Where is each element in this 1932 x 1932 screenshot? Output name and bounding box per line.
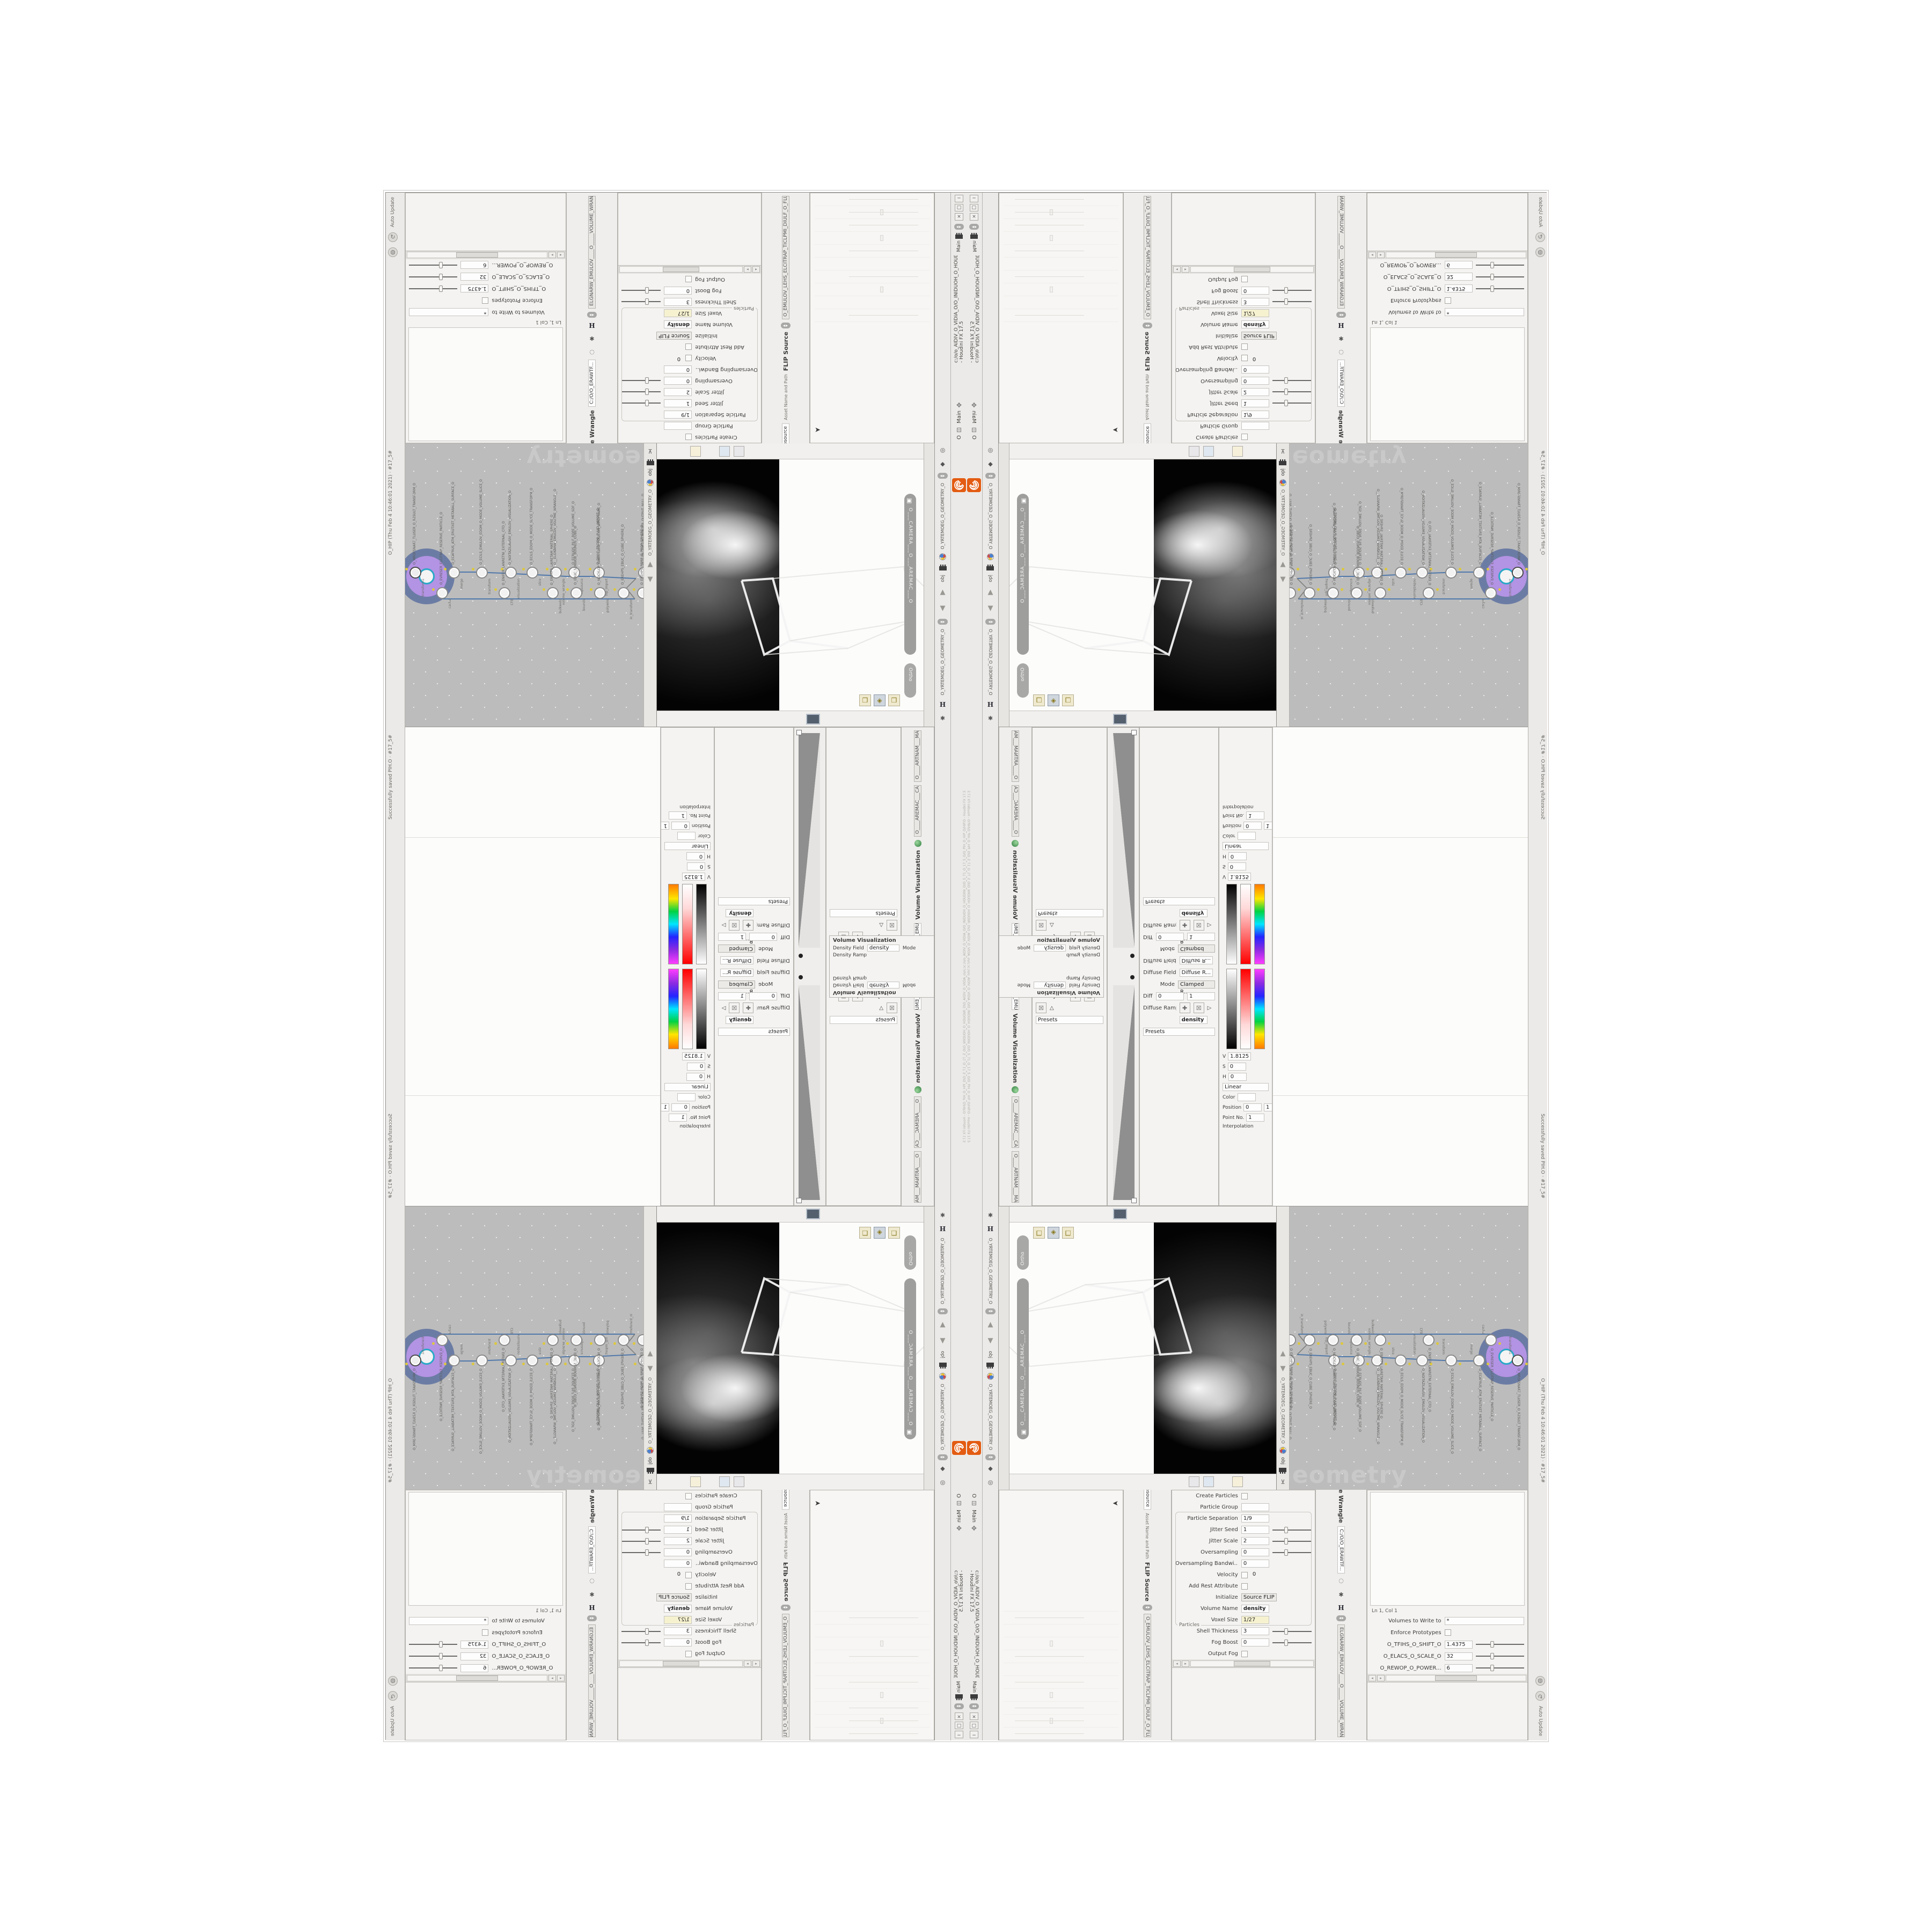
- ortho-pill[interactable]: Ortho: [904, 663, 916, 698]
- param-value-input[interactable]: [654, 275, 682, 283]
- breadcrumb[interactable]: obj: [988, 1351, 993, 1358]
- param-value-input[interactable]: 1/9: [664, 411, 692, 419]
- node-circle[interactable]: [409, 1355, 421, 1366]
- param-value-input[interactable]: 0: [1241, 365, 1269, 374]
- param-value-input[interactable]: 0: [1241, 287, 1269, 295]
- param-slider[interactable]: [409, 1644, 457, 1645]
- param-checkbox[interactable]: [1241, 1651, 1248, 1657]
- enforce-prototypes-checkbox[interactable]: [1445, 1629, 1451, 1636]
- pane-handle-icon[interactable]: ◂▸: [1336, 1615, 1346, 1621]
- network-node[interactable]: O_ENIFER_LANRETNI_EXTERNAL_CFD_O CFB: [1421, 587, 1437, 599]
- toolbar-icon[interactable]: [1261, 1477, 1272, 1488]
- ramp-point-marker[interactable]: [799, 954, 803, 958]
- node-circle[interactable]: [1351, 1334, 1363, 1346]
- network-node[interactable]: O_EBUC_SDNUOB_BOUNDS_CUBE_O bounds: [1349, 1334, 1365, 1346]
- toolbar-icon[interactable]: [1203, 446, 1214, 457]
- param-slider[interactable]: [1272, 380, 1312, 382]
- param-value-input[interactable]: 6: [460, 261, 488, 269]
- toolbar-icon[interactable]: [690, 1209, 701, 1220]
- diffuse-field-input[interactable]: Diffuse R...: [1180, 969, 1213, 977]
- node-circle[interactable]: [1304, 1334, 1315, 1346]
- toolbar-icon[interactable]: [1247, 1477, 1257, 1488]
- ortho-pill[interactable]: Ortho: [1017, 1235, 1029, 1270]
- refresh-icon[interactable]: ↻: [1535, 232, 1545, 242]
- hscript-icon[interactable]: H: [938, 1224, 948, 1233]
- network-node[interactable]: O_ECILS_EMULOV_EDOM_O_MODE_VOLUME_SLICE_…: [1443, 1355, 1459, 1366]
- toolbar-icon[interactable]: [676, 446, 686, 457]
- param-value-input[interactable]: 32: [1445, 273, 1473, 281]
- param-value-input[interactable]: 1: [1241, 1526, 1269, 1534]
- hscript-icon[interactable]: H: [986, 700, 996, 709]
- density-bold-value[interactable]: density: [1180, 910, 1207, 918]
- toolbar-icon[interactable]: [705, 1209, 715, 1220]
- param-value-input[interactable]: [1251, 1492, 1279, 1500]
- node-flag-badge[interactable]: [1388, 588, 1391, 591]
- param-slider[interactable]: [409, 288, 457, 289]
- h-input[interactable]: 0: [686, 852, 705, 860]
- delete-point-icon[interactable]: ☒: [729, 1002, 740, 1013]
- param-slider[interactable]: [1272, 1552, 1312, 1553]
- param-value-input[interactable]: Source FLIP: [1241, 1593, 1277, 1601]
- toolbar-icon[interactable]: [676, 714, 686, 724]
- param-value-input[interactable]: 3: [664, 298, 692, 306]
- pane-handle-icon[interactable]: ◂▸: [1336, 312, 1346, 318]
- display-mode-icon[interactable]: ◈: [874, 694, 885, 706]
- param-value-input[interactable]: Source FLIP: [656, 332, 692, 340]
- gear-icon[interactable]: ✱: [986, 1210, 996, 1219]
- param-value-input[interactable]: 1/9: [664, 1514, 692, 1523]
- ramp-marker-icon[interactable]: ▷: [722, 923, 726, 928]
- node-flag-badge[interactable]: [1342, 568, 1344, 570]
- toolbar-icon[interactable]: [1099, 714, 1109, 724]
- snap-icon[interactable]: ◆: [986, 1465, 996, 1474]
- value-gradient-bar[interactable]: [696, 969, 707, 1049]
- pane-handle-icon[interactable]: ◂▸: [969, 1703, 979, 1709]
- toolbar-icon[interactable]: [1102, 1477, 1113, 1488]
- param-slider[interactable]: [621, 1552, 661, 1553]
- breadcrumb[interactable]: obj: [940, 1351, 946, 1358]
- param-checkbox[interactable]: [1241, 1493, 1248, 1499]
- network-node[interactable]: O_NOCYLOP_EMARFERIW_POLYCON_WIREFRAME_O …: [592, 587, 608, 599]
- param-value-input[interactable]: 0: [664, 1560, 692, 1568]
- param-slider[interactable]: [1476, 265, 1524, 266]
- toolbar-icon[interactable]: [1203, 1209, 1214, 1220]
- scene-viewport[interactable]: ▣ O___CAMERA___O___AREMAC___O Ortho ❒ ◈ …: [1009, 1206, 1276, 1490]
- lighting-icon[interactable]: ❒: [888, 694, 900, 706]
- toolbar-icon[interactable]: [806, 1477, 817, 1488]
- toolbar-icon[interactable]: [824, 1209, 835, 1220]
- density-field-input[interactable]: density: [1034, 982, 1066, 989]
- lighting-icon[interactable]: ❒: [1033, 694, 1045, 706]
- param-slider[interactable]: [1272, 302, 1312, 303]
- add-point-icon[interactable]: ✚: [743, 920, 753, 931]
- param-slider[interactable]: [1272, 1529, 1312, 1531]
- color-swatch[interactable]: [678, 1093, 696, 1101]
- node-flag-badge[interactable]: [613, 1342, 616, 1345]
- nav-down-icon[interactable]: ▼: [937, 1319, 949, 1330]
- param-value-input[interactable]: 1/27: [1241, 309, 1269, 317]
- breadcrumb[interactable]: obj: [1280, 1457, 1286, 1465]
- refresh-icon[interactable]: ↻: [388, 1691, 398, 1701]
- node-circle[interactable]: [1485, 587, 1497, 599]
- node-circle[interactable]: [476, 1355, 488, 1366]
- param-value-input[interactable]: 0: [664, 377, 692, 385]
- interpolation-select[interactable]: Linear: [664, 1083, 711, 1091]
- node-circle[interactable]: [1445, 1355, 1457, 1366]
- param-value-input[interactable]: 0: [654, 1571, 682, 1579]
- ramp-marker-icon[interactable]: △: [1050, 923, 1054, 928]
- density-field-input[interactable]: density: [867, 982, 899, 989]
- node-flag-badge[interactable]: [1298, 588, 1300, 591]
- node-flag-badge[interactable]: [634, 1363, 636, 1365]
- s-input[interactable]: 0: [687, 862, 705, 870]
- enforce-prototypes-checkbox[interactable]: [482, 1629, 488, 1636]
- ramp-end-marker[interactable]: [796, 730, 802, 735]
- toolbar-icon[interactable]: [1174, 446, 1185, 457]
- toolbar-icon[interactable]: [1145, 446, 1156, 457]
- volumes-to-write-input[interactable]: *: [1445, 309, 1524, 317]
- vex-code-editor[interactable]: [408, 327, 563, 441]
- position-hi[interactable]: 1: [661, 822, 669, 830]
- toolbar-icon[interactable]: [719, 446, 730, 457]
- node-circle[interactable]: [594, 587, 606, 599]
- toolbar-icon[interactable]: [690, 1477, 701, 1488]
- diffuse-field-input[interactable]: Diffuse R...: [1180, 957, 1213, 965]
- node-flag-badge[interactable]: [633, 1342, 635, 1345]
- toolbar-icon[interactable]: [1113, 1209, 1127, 1220]
- node-flag-badge[interactable]: [564, 568, 567, 570]
- param-value-input[interactable]: 1: [1241, 399, 1269, 407]
- toolbar-icon[interactable]: [661, 446, 672, 457]
- pane-handle-icon[interactable]: ◂▸: [1143, 1605, 1152, 1611]
- gear-icon[interactable]: ✱: [1336, 334, 1346, 343]
- toolbar-icon[interactable]: [1131, 714, 1141, 724]
- ramp-end-marker[interactable]: [796, 1198, 802, 1203]
- point-no-input[interactable]: 1: [669, 1114, 687, 1122]
- param-slider[interactable]: [621, 1529, 661, 1531]
- value-gradient-bar[interactable]: [1226, 969, 1237, 1049]
- node-circle[interactable]: [526, 567, 538, 579]
- network-node[interactable]: O_MROFSNART_TLUSER_O_RESULT_TRANSFORM_O …: [407, 1355, 423, 1366]
- param-value-input[interactable]: [654, 1650, 682, 1658]
- node-flag-badge[interactable]: [1317, 588, 1320, 591]
- value-gradient-bar[interactable]: [696, 884, 707, 964]
- horizontal-scrollbar[interactable]: ◂▸: [406, 1674, 566, 1682]
- hscript-icon[interactable]: H: [587, 321, 597, 331]
- wrangle-tab[interactable]: ELGNARW_EMULOV____O_____VOLUME_WRANGL...: [588, 1624, 596, 1737]
- display-mode-icon[interactable]: ◈: [1048, 1227, 1059, 1239]
- network-node[interactable]: O_ENIFER_LANRETNI_EXTERNAL_CFD_O CFB: [1421, 1334, 1437, 1346]
- density-field-input[interactable]: density: [867, 945, 899, 952]
- node-circle[interactable]: [476, 567, 488, 579]
- node-flag-badge[interactable]: [1487, 1363, 1489, 1365]
- node-flag-badge[interactable]: [472, 568, 474, 570]
- nav-down-icon[interactable]: ▼: [937, 603, 949, 614]
- auto-update-label[interactable]: Auto Update: [390, 1706, 396, 1736]
- density-field-input[interactable]: density: [1034, 945, 1066, 952]
- restore-icon[interactable]: □: [970, 1722, 978, 1729]
- node-flag-badge[interactable]: [1364, 1342, 1367, 1345]
- v-input[interactable]: 1.8125: [682, 1052, 705, 1060]
- node-circle[interactable]: [618, 1334, 630, 1346]
- network-node[interactable]: O_NOCYLOP_EMARFERIW_POLYCON_WIREFRAME_O …: [592, 1334, 608, 1346]
- node-circle[interactable]: [547, 1334, 559, 1346]
- node-flag-badge[interactable]: [566, 588, 569, 591]
- nav-down-icon[interactable]: ▼: [1277, 1348, 1289, 1359]
- node-flag-badge[interactable]: [589, 1363, 591, 1365]
- breadcrumb[interactable]: obj: [648, 469, 653, 476]
- range-lo-input[interactable]: 0: [1156, 933, 1184, 941]
- minimize-icon[interactable]: ─: [970, 1731, 978, 1738]
- node-circle[interactable]: [505, 567, 517, 579]
- toolbar-icon[interactable]: [1232, 714, 1243, 724]
- node-circle[interactable]: [547, 587, 559, 599]
- density-ramp-widget[interactable]: [1107, 727, 1139, 967]
- toolbar-icon[interactable]: [821, 1477, 831, 1488]
- node-flag-badge[interactable]: [590, 588, 592, 591]
- node-flag-badge[interactable]: [546, 1363, 548, 1365]
- toolbar-icon[interactable]: [661, 1209, 672, 1220]
- diffuse-mode-select[interactable]: Clamped R...: [718, 980, 755, 989]
- node-flag-badge[interactable]: [1317, 1342, 1320, 1345]
- gear-icon[interactable]: ✱: [938, 1210, 948, 1219]
- hue-gradient-bar[interactable]: [1254, 969, 1265, 1049]
- node-flag-badge[interactable]: [1459, 1363, 1461, 1365]
- node-circle[interactable]: [1445, 567, 1457, 579]
- param-checkbox[interactable]: [685, 355, 692, 362]
- diffuse-mode-select[interactable]: Clamped R...: [1178, 980, 1215, 989]
- breadcrumb[interactable]: obj: [1280, 469, 1286, 476]
- delete-point-icon[interactable]: ☒: [1194, 1002, 1204, 1013]
- pane-splitter[interactable]: [924, 1206, 934, 1490]
- node-circle[interactable]: [1473, 567, 1485, 579]
- param-slider[interactable]: [1272, 1541, 1312, 1542]
- lighting-icon[interactable]: ❒: [888, 1227, 900, 1239]
- tab-camera[interactable]: O____AREMAC___CAMERA____O: [1012, 785, 1019, 837]
- toolbar-icon[interactable]: [748, 714, 759, 724]
- ramp-point-marker[interactable]: [1130, 954, 1135, 958]
- param-value-input[interactable]: [1251, 1650, 1279, 1658]
- node-circle[interactable]: [570, 1334, 582, 1346]
- param-value-input[interactable]: 1/27: [1241, 1616, 1269, 1624]
- network-node[interactable]: O_ECAFRUS_ATM_ERUTXET_METABALL_SURFACE_O…: [1471, 567, 1487, 579]
- param-checkbox[interactable]: [685, 344, 692, 350]
- toolbar-icon[interactable]: [690, 446, 701, 457]
- network-node[interactable]: O_NOCYLOP_EMARFERIW_POLYCON_WIREFRAME_O …: [1325, 587, 1341, 599]
- param-value-input[interactable]: 1.4375: [1445, 285, 1473, 293]
- param-value-input[interactable]: [1251, 433, 1279, 441]
- node-flag-badge[interactable]: [444, 568, 447, 570]
- toolbar-icon[interactable]: [1218, 1477, 1228, 1488]
- toolbar-icon[interactable]: [763, 714, 773, 724]
- scene-viewport[interactable]: ▣ O___CAMERA___O___AREMAC___O Ortho ❒ ◈ …: [657, 443, 924, 727]
- horizontal-scrollbar[interactable]: ◂▸: [1367, 1674, 1527, 1682]
- network-node[interactable]: O_ECAFRUS_ATM_ERUTXET_METABALL_SURFACE_O…: [446, 567, 462, 579]
- network-editor[interactable]: Geometry O_MROFSNART_TLUSER_O_RESULT_TRA…: [386, 443, 657, 727]
- gear-icon[interactable]: ✱: [587, 334, 597, 343]
- param-slider[interactable]: [621, 1541, 661, 1542]
- v-input[interactable]: 1.8125: [1228, 873, 1251, 881]
- snapshot-icon[interactable]: ❒: [859, 1227, 871, 1239]
- position-hi[interactable]: 1: [1264, 822, 1272, 830]
- tab-camera[interactable]: O____AREMAC___CAMERA____O: [914, 1096, 921, 1148]
- toolbar-icon[interactable]: [1247, 714, 1257, 724]
- presets-button[interactable]: Presets: [830, 1016, 897, 1024]
- pane-handle-icon[interactable]: ◂▸: [587, 312, 597, 318]
- grid-layout-button[interactable]: ⊟ O: [971, 1494, 977, 1507]
- toolbar-icon[interactable]: [1232, 1477, 1243, 1488]
- param-value-input[interactable]: 0: [1251, 1571, 1279, 1579]
- toolbar-icon[interactable]: [734, 1209, 744, 1220]
- network-node[interactable]: O_MROFSNART_TLUSER_O_RESULT_TRANSFORM_O …: [1510, 1355, 1526, 1366]
- param-value-input[interactable]: 0: [1241, 377, 1269, 385]
- vex-code-editor[interactable]: [1370, 1492, 1525, 1606]
- toolbar-icon[interactable]: [1203, 714, 1214, 724]
- presets-button[interactable]: Presets: [1143, 898, 1215, 906]
- desktop-selector[interactable]: Main: [955, 1681, 963, 1701]
- position-lo[interactable]: 0: [671, 822, 690, 830]
- viewport-canvas[interactable]: ▣ O___CAMERA___O___AREMAC___O Ortho ❒ ◈ …: [1009, 1223, 1276, 1474]
- ramp-point-marker[interactable]: [799, 975, 803, 979]
- camera-selector-pill[interactable]: ▣ O___CAMERA___O___AREMAC___O: [1017, 1278, 1029, 1439]
- snapshot-icon[interactable]: ❒: [859, 694, 871, 706]
- node-circle[interactable]: [1416, 1355, 1428, 1366]
- param-checkbox[interactable]: [1241, 344, 1248, 350]
- main-layout-button[interactable]: ✥ Main: [956, 1510, 962, 1532]
- param-value-input[interactable]: [654, 1492, 682, 1500]
- auto-update-label[interactable]: Auto Update: [1538, 1706, 1543, 1736]
- node-flag-badge[interactable]: [1364, 588, 1367, 591]
- density-bold-value[interactable]: density: [726, 1016, 753, 1024]
- node-circle[interactable]: [1351, 587, 1363, 599]
- node-flag-badge[interactable]: [634, 568, 636, 570]
- node-circle[interactable]: [618, 587, 630, 599]
- volumes-to-write-input[interactable]: *: [1445, 1617, 1524, 1625]
- toolbar-icon[interactable]: [676, 1209, 686, 1220]
- param-value-input[interactable]: 32: [460, 273, 488, 281]
- param-value-input[interactable]: density: [1241, 320, 1269, 328]
- toolbar-icon[interactable]: [763, 1209, 773, 1220]
- node-circle[interactable]: [1512, 1355, 1524, 1366]
- point-no-input[interactable]: 1: [1246, 1114, 1264, 1122]
- param-value-input[interactable]: density: [664, 320, 692, 328]
- presets-button[interactable]: Presets: [718, 1028, 790, 1036]
- hscript-icon[interactable]: H: [986, 1224, 996, 1233]
- node-flag-badge[interactable]: [1498, 1342, 1501, 1345]
- network-node[interactable]: O_EREHPS_EBUC_O_CUBE_SPHERE_O in_transfo…: [616, 587, 632, 599]
- nav-down-icon[interactable]: ▼: [1277, 574, 1289, 586]
- horizontal-scrollbar[interactable]: ◂▸: [1367, 251, 1527, 259]
- toolbar-icon[interactable]: [734, 1477, 744, 1488]
- snapshot-icon[interactable]: ❒: [1062, 694, 1074, 706]
- network-node[interactable]: O_EREHPS_EBUC_O_CUBE_SPHERE_O in_transfo…: [1301, 1334, 1318, 1346]
- nav-up-icon[interactable]: ▲: [985, 1335, 997, 1346]
- param-value-input[interactable]: [654, 433, 682, 441]
- param-value-input[interactable]: 3: [1241, 1627, 1269, 1635]
- toolbar-icon[interactable]: [1189, 714, 1199, 724]
- node-flag-badge[interactable]: [1498, 588, 1501, 591]
- param-slider[interactable]: [409, 276, 457, 277]
- h-input[interactable]: 0: [1228, 1073, 1247, 1081]
- delete-point-icon[interactable]: ☒: [1036, 920, 1046, 931]
- node-flag-badge[interactable]: [613, 588, 616, 591]
- horizontal-scrollbar[interactable]: ◂▸: [618, 1659, 761, 1668]
- saturation-gradient-bar[interactable]: [1240, 969, 1251, 1049]
- toolbar-icon[interactable]: [1247, 446, 1257, 457]
- toolbar-icon[interactable]: [661, 714, 672, 724]
- refresh-icon[interactable]: ↻: [1535, 1691, 1545, 1701]
- presets-button[interactable]: Presets: [830, 910, 897, 918]
- grid-layout-button[interactable]: ⊟ O: [956, 1494, 962, 1507]
- node-circle[interactable]: [499, 587, 510, 599]
- nav-up-icon[interactable]: ▲: [645, 1363, 656, 1374]
- toolbar-icon[interactable]: [1203, 1477, 1214, 1488]
- tab-mantra[interactable]: O____ARTNAM___MANTRA____O: [914, 1151, 921, 1203]
- param-value-input[interactable]: [1251, 1582, 1279, 1590]
- asset-file-field[interactable]: C:/O/O_ERAWTF...: [1337, 360, 1345, 407]
- network-node[interactable]: O_MROFSNART_TLUSER_O_RESULT_TRANSFORM_O …: [1510, 567, 1526, 579]
- hint-icon[interactable]: ◍: [1535, 1676, 1545, 1686]
- grid-layout-button[interactable]: ⊟ O: [956, 426, 962, 440]
- node-circle[interactable]: [1327, 1334, 1339, 1346]
- viewport-canvas[interactable]: ▣ O___CAMERA___O___AREMAC___O Ortho ❒ ◈ …: [657, 459, 924, 711]
- toolbar-icon[interactable]: [792, 1477, 802, 1488]
- toolbar-icon[interactable]: [792, 446, 802, 457]
- tab-mantra[interactable]: O____ARTNAM___MANTRA____O: [914, 730, 921, 782]
- snapshot-icon[interactable]: ❒: [1062, 1227, 1074, 1239]
- toolbar-icon[interactable]: [1218, 446, 1228, 457]
- param-checkbox[interactable]: [1241, 434, 1248, 441]
- param-slider[interactable]: [409, 1656, 457, 1657]
- network-node[interactable]: O_EREHPS_EBUC_O_CUBE_SPHERE_O in_transfo…: [1301, 587, 1318, 599]
- diffuse-field-input[interactable]: Diffuse R...: [720, 969, 753, 977]
- radial-menu-icon[interactable]: ◎: [986, 445, 996, 455]
- node-circle[interactable]: [409, 567, 421, 579]
- node-flag-badge[interactable]: [546, 568, 548, 570]
- color-swatch[interactable]: [678, 832, 696, 840]
- toolbar-icon[interactable]: [1102, 446, 1113, 457]
- node-flag-badge[interactable]: [1342, 1363, 1344, 1365]
- s-input[interactable]: 0: [687, 1063, 705, 1071]
- hue-gradient-bar[interactable]: [668, 969, 679, 1049]
- ramp-point-marker[interactable]: [1130, 975, 1135, 979]
- toolbar-icon[interactable]: [763, 446, 773, 457]
- network-node[interactable]: O_EBUC_SDNUOB_BOUNDS_CUBE_O bounds: [1349, 587, 1365, 599]
- param-value-input[interactable]: 1: [664, 1526, 692, 1534]
- density-ramp-widget[interactable]: [1107, 967, 1139, 1206]
- viewport-canvas[interactable]: ▣ O___CAMERA___O___AREMAC___O Ortho ❒ ◈ …: [1009, 459, 1276, 711]
- param-checkbox[interactable]: [1241, 1572, 1248, 1578]
- node-flag-badge[interactable]: [1298, 1342, 1300, 1345]
- param-value-input[interactable]: 2: [664, 1537, 692, 1545]
- breadcrumb[interactable]: obj: [988, 575, 993, 582]
- param-value-input[interactable]: 6: [460, 1664, 488, 1672]
- node-flag-badge[interactable]: [564, 1363, 567, 1365]
- ramp-marker-icon[interactable]: △: [879, 923, 883, 928]
- toolbar-icon[interactable]: [1116, 1477, 1127, 1488]
- add-point-icon[interactable]: ✚: [1180, 1002, 1190, 1013]
- display-mode-icon[interactable]: ◈: [874, 1227, 885, 1239]
- position-hi[interactable]: 1: [1264, 1103, 1272, 1111]
- toolbar-icon[interactable]: [1218, 1209, 1228, 1220]
- param-value-input[interactable]: [654, 1582, 682, 1590]
- param-checkbox[interactable]: [685, 276, 692, 283]
- param-value-input[interactable]: 0: [1241, 1548, 1269, 1556]
- hscript-icon[interactable]: H: [587, 1602, 597, 1612]
- network-node[interactable]: O_EVRESER_ELCITRAP_RESERVE_PARTICLE_O ca…: [1483, 1334, 1499, 1346]
- network-node[interactable]: O_ECILS_EMULOV_EDOM_O_MODE_VOLUME_SLICE_…: [1443, 567, 1459, 579]
- param-value-input[interactable]: [1241, 422, 1269, 430]
